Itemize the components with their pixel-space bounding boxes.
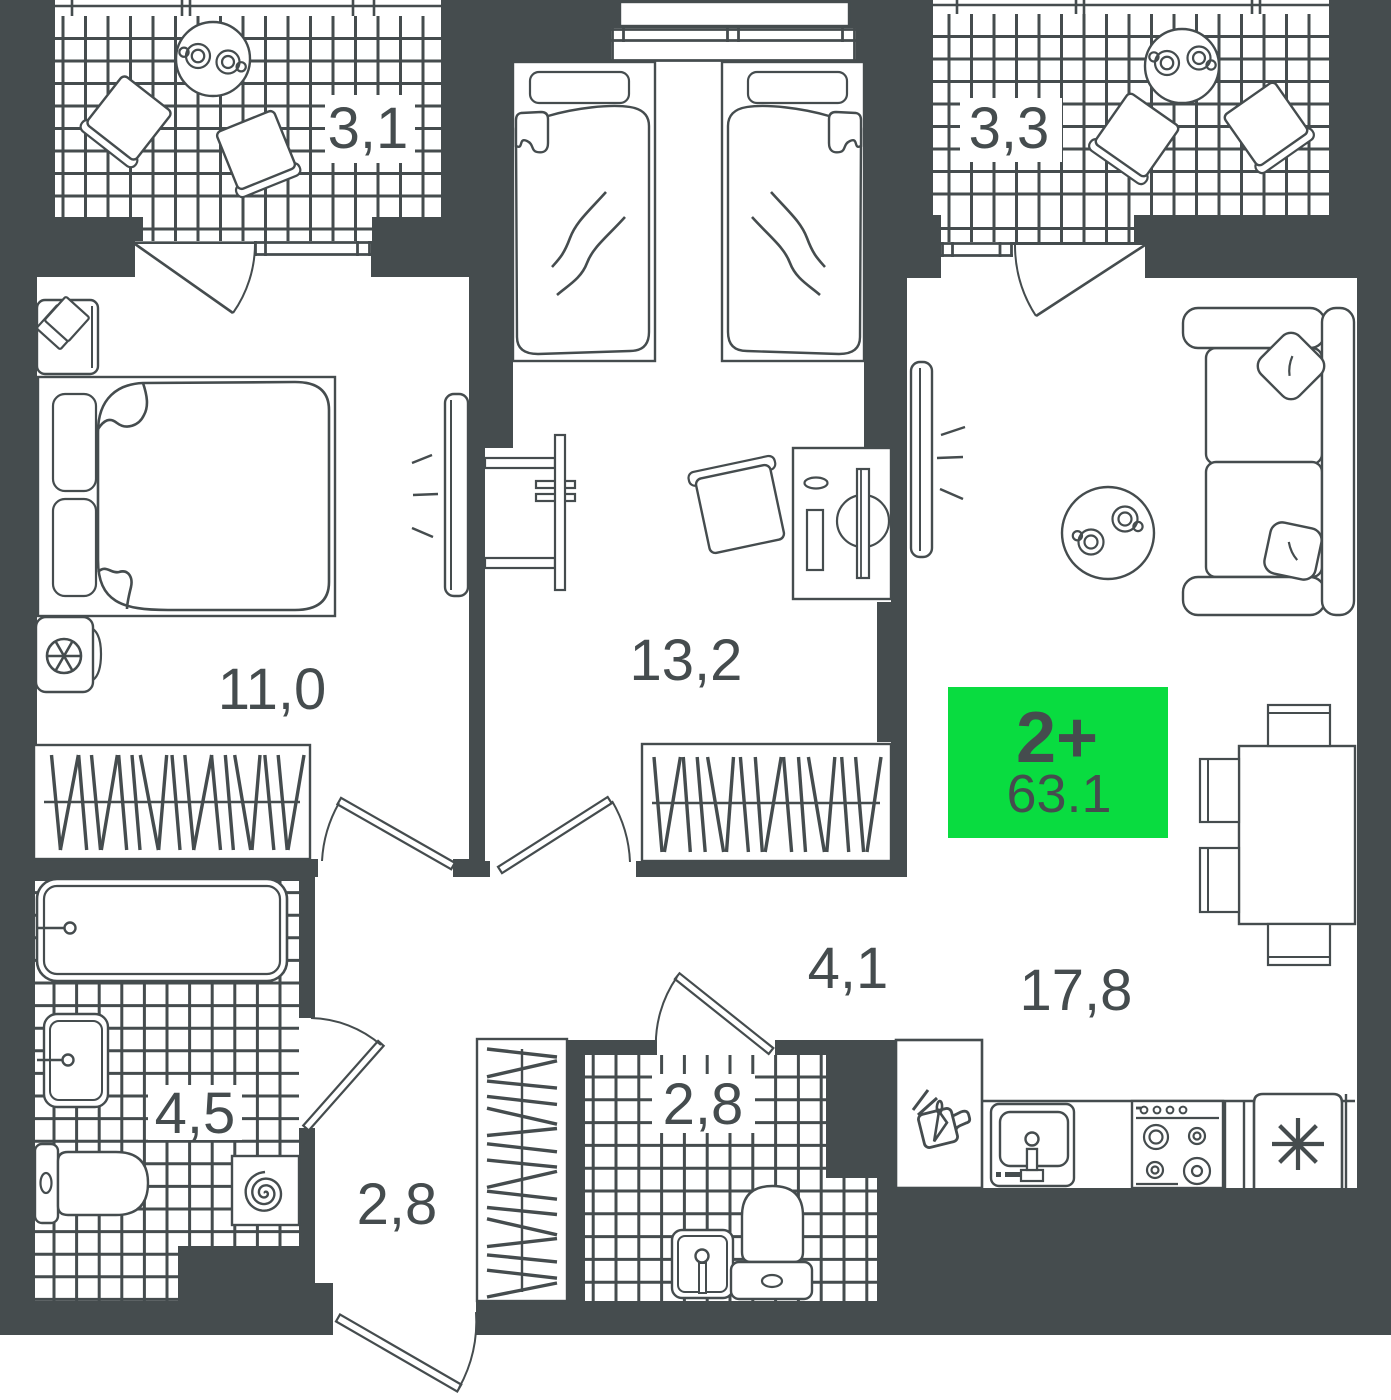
svg-text:2,8: 2,8 [357,1172,438,1237]
svg-text:11,0: 11,0 [218,657,327,722]
svg-text:2,8: 2,8 [663,1072,744,1137]
svg-text:63.1: 63.1 [1006,764,1111,824]
svg-text:4,5: 4,5 [155,1081,236,1146]
svg-text:3,3: 3,3 [969,96,1050,161]
svg-text:17,8: 17,8 [1020,958,1133,1023]
svg-text:13,2: 13,2 [630,628,743,693]
svg-text:3,1: 3,1 [328,96,409,161]
svg-text:4,1: 4,1 [808,936,889,1001]
